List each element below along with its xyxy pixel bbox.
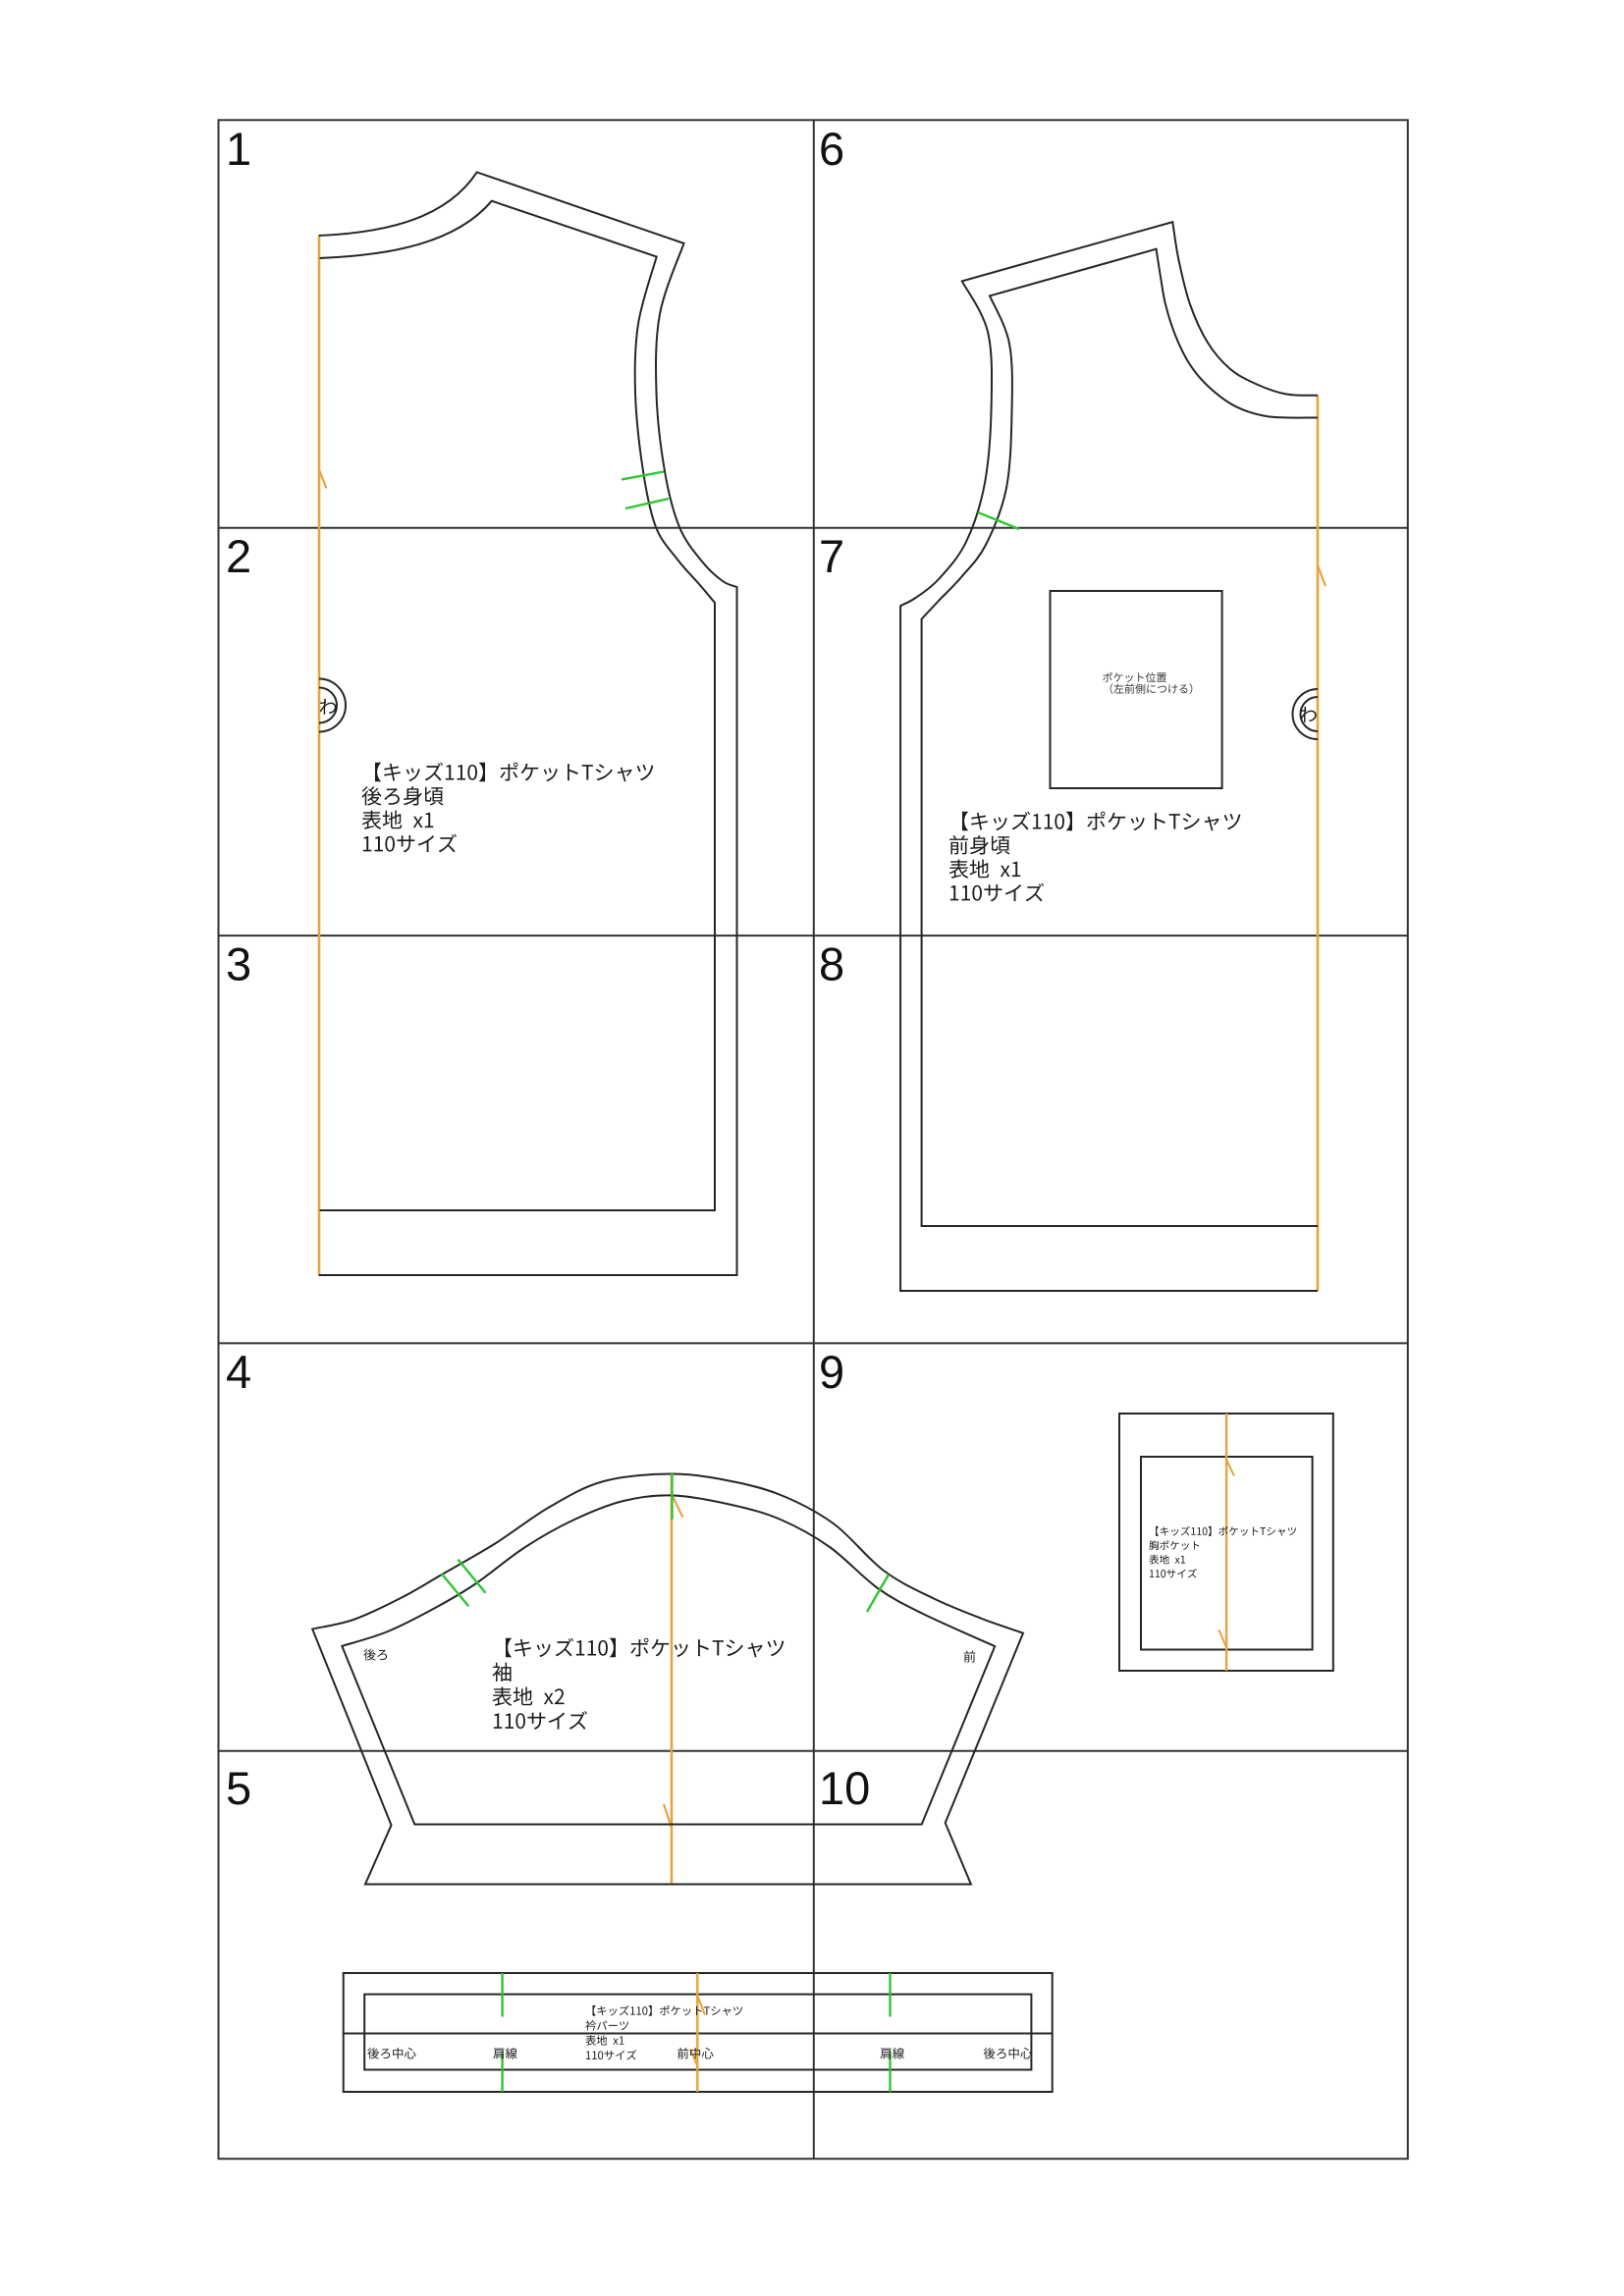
svg-text:1: 1 xyxy=(226,123,251,175)
svg-text:10: 10 xyxy=(819,1762,870,1814)
svg-text:2: 2 xyxy=(226,530,251,582)
svg-text:9: 9 xyxy=(819,1346,844,1398)
svg-text:4: 4 xyxy=(226,1346,251,1398)
svg-text:5: 5 xyxy=(226,1762,251,1814)
svg-text:6: 6 xyxy=(819,123,844,175)
svg-text:8: 8 xyxy=(819,938,844,990)
svg-text:3: 3 xyxy=(226,938,251,990)
svg-text:7: 7 xyxy=(819,530,844,582)
